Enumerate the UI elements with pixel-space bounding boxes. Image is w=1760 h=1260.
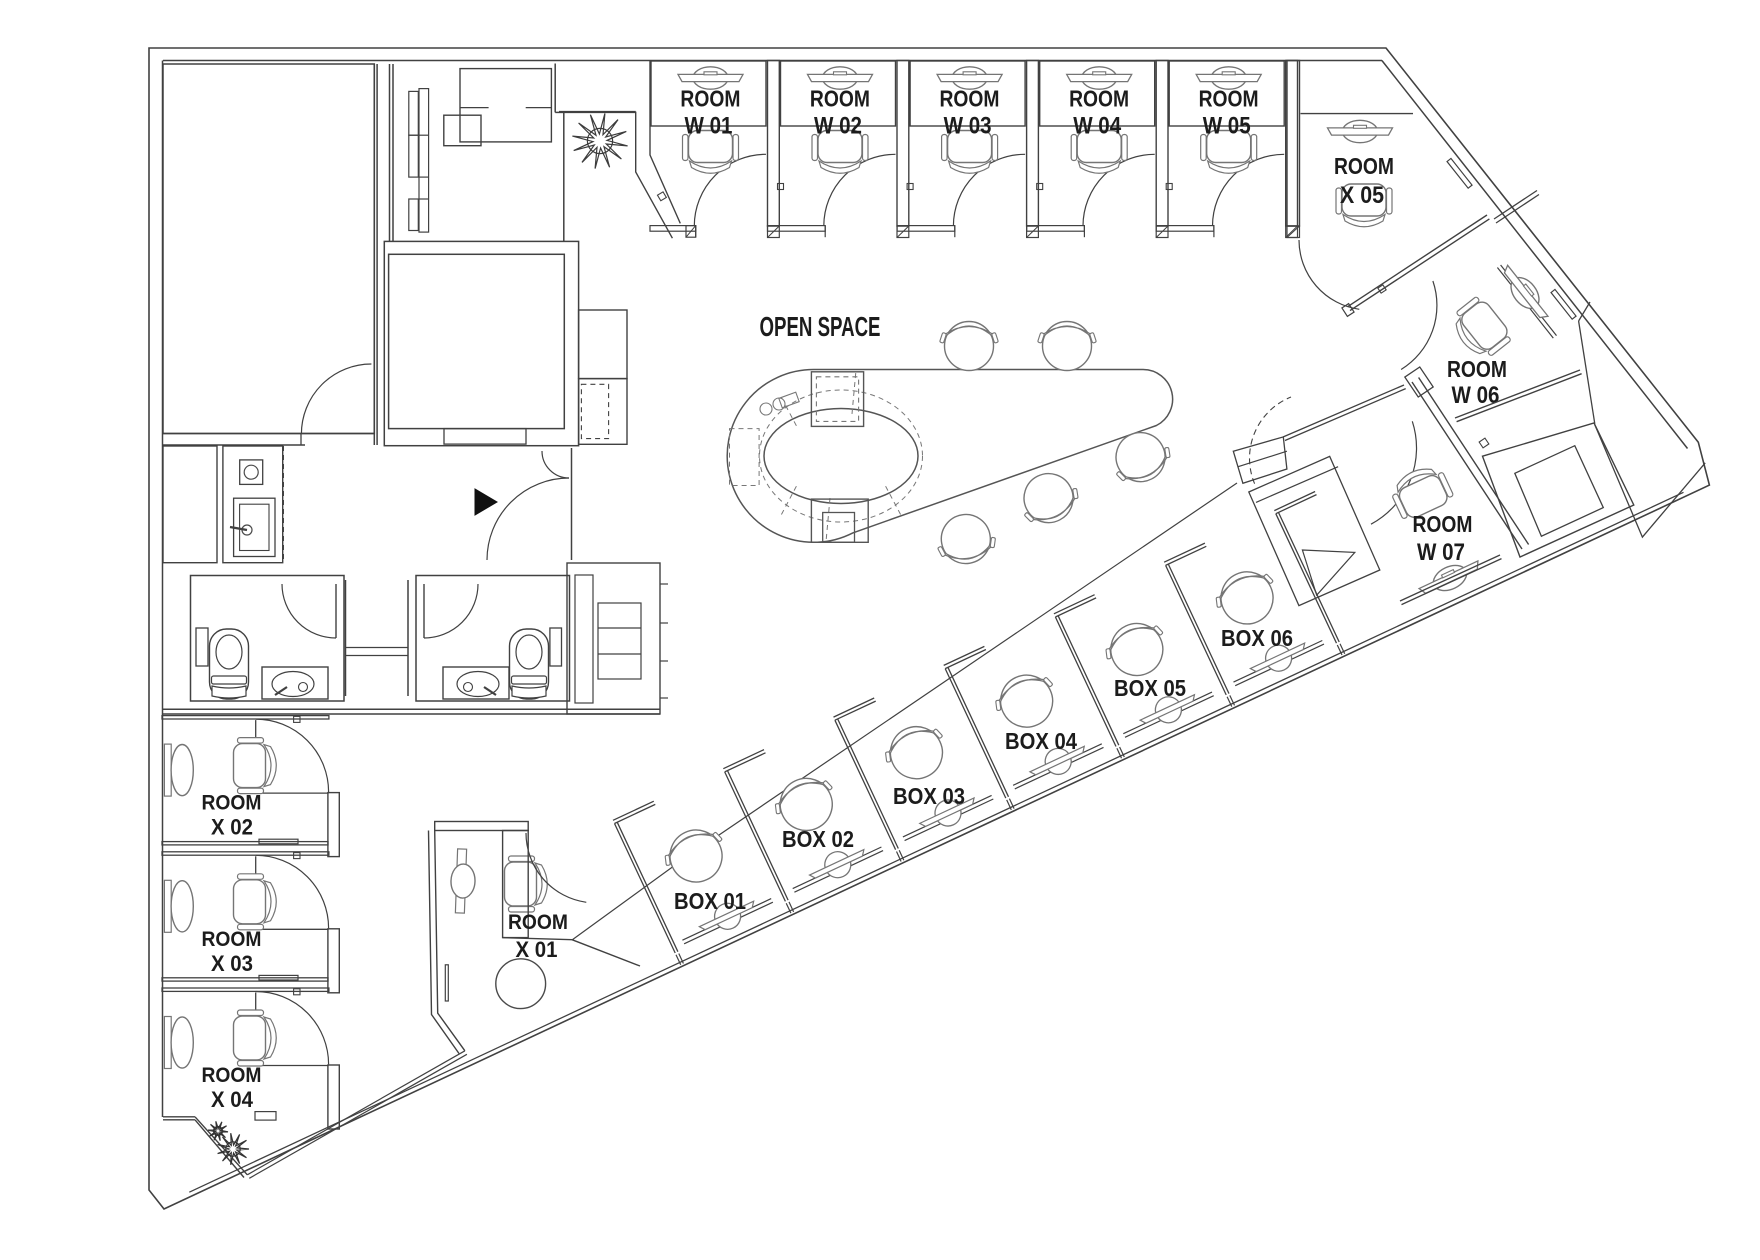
svg-text:ROOM: ROOM	[1334, 153, 1394, 179]
svg-text:ROOM: ROOM	[680, 86, 740, 112]
svg-text:ROOM: ROOM	[1447, 356, 1507, 382]
svg-text:ROOM: ROOM	[1199, 86, 1259, 112]
svg-text:ROOM: ROOM	[508, 911, 568, 934]
svg-text:ROOM: ROOM	[1069, 86, 1129, 112]
svg-text:X 05: X 05	[1340, 182, 1384, 209]
svg-text:BOX 02: BOX 02	[782, 826, 854, 852]
svg-text:W 03: W 03	[944, 113, 992, 140]
svg-text:W 07: W 07	[1417, 539, 1465, 566]
svg-text:BOX 01: BOX 01	[674, 888, 746, 914]
svg-text:BOX 05: BOX 05	[1114, 675, 1186, 701]
svg-text:W 05: W 05	[1203, 113, 1251, 140]
svg-text:X 03: X 03	[211, 951, 253, 976]
svg-text:W 02: W 02	[814, 113, 862, 140]
svg-text:BOX 06: BOX 06	[1221, 625, 1293, 651]
svg-text:ROOM: ROOM	[202, 928, 262, 951]
svg-text:ROOM: ROOM	[810, 86, 870, 112]
svg-text:X 04: X 04	[211, 1087, 254, 1112]
svg-text:ROOM: ROOM	[202, 1064, 262, 1087]
svg-text:OPEN SPACE: OPEN SPACE	[760, 311, 881, 342]
svg-text:W 04: W 04	[1073, 113, 1121, 140]
svg-text:ROOM: ROOM	[202, 792, 262, 815]
svg-text:X 01: X 01	[516, 937, 558, 962]
svg-text:ROOM: ROOM	[1413, 511, 1473, 537]
svg-text:BOX 04: BOX 04	[1005, 728, 1077, 754]
svg-text:X 02: X 02	[211, 815, 253, 840]
svg-text:W 06: W 06	[1452, 382, 1500, 409]
svg-text:W 01: W 01	[685, 113, 733, 140]
svg-text:BOX 03: BOX 03	[893, 783, 965, 809]
svg-text:ROOM: ROOM	[940, 86, 1000, 112]
